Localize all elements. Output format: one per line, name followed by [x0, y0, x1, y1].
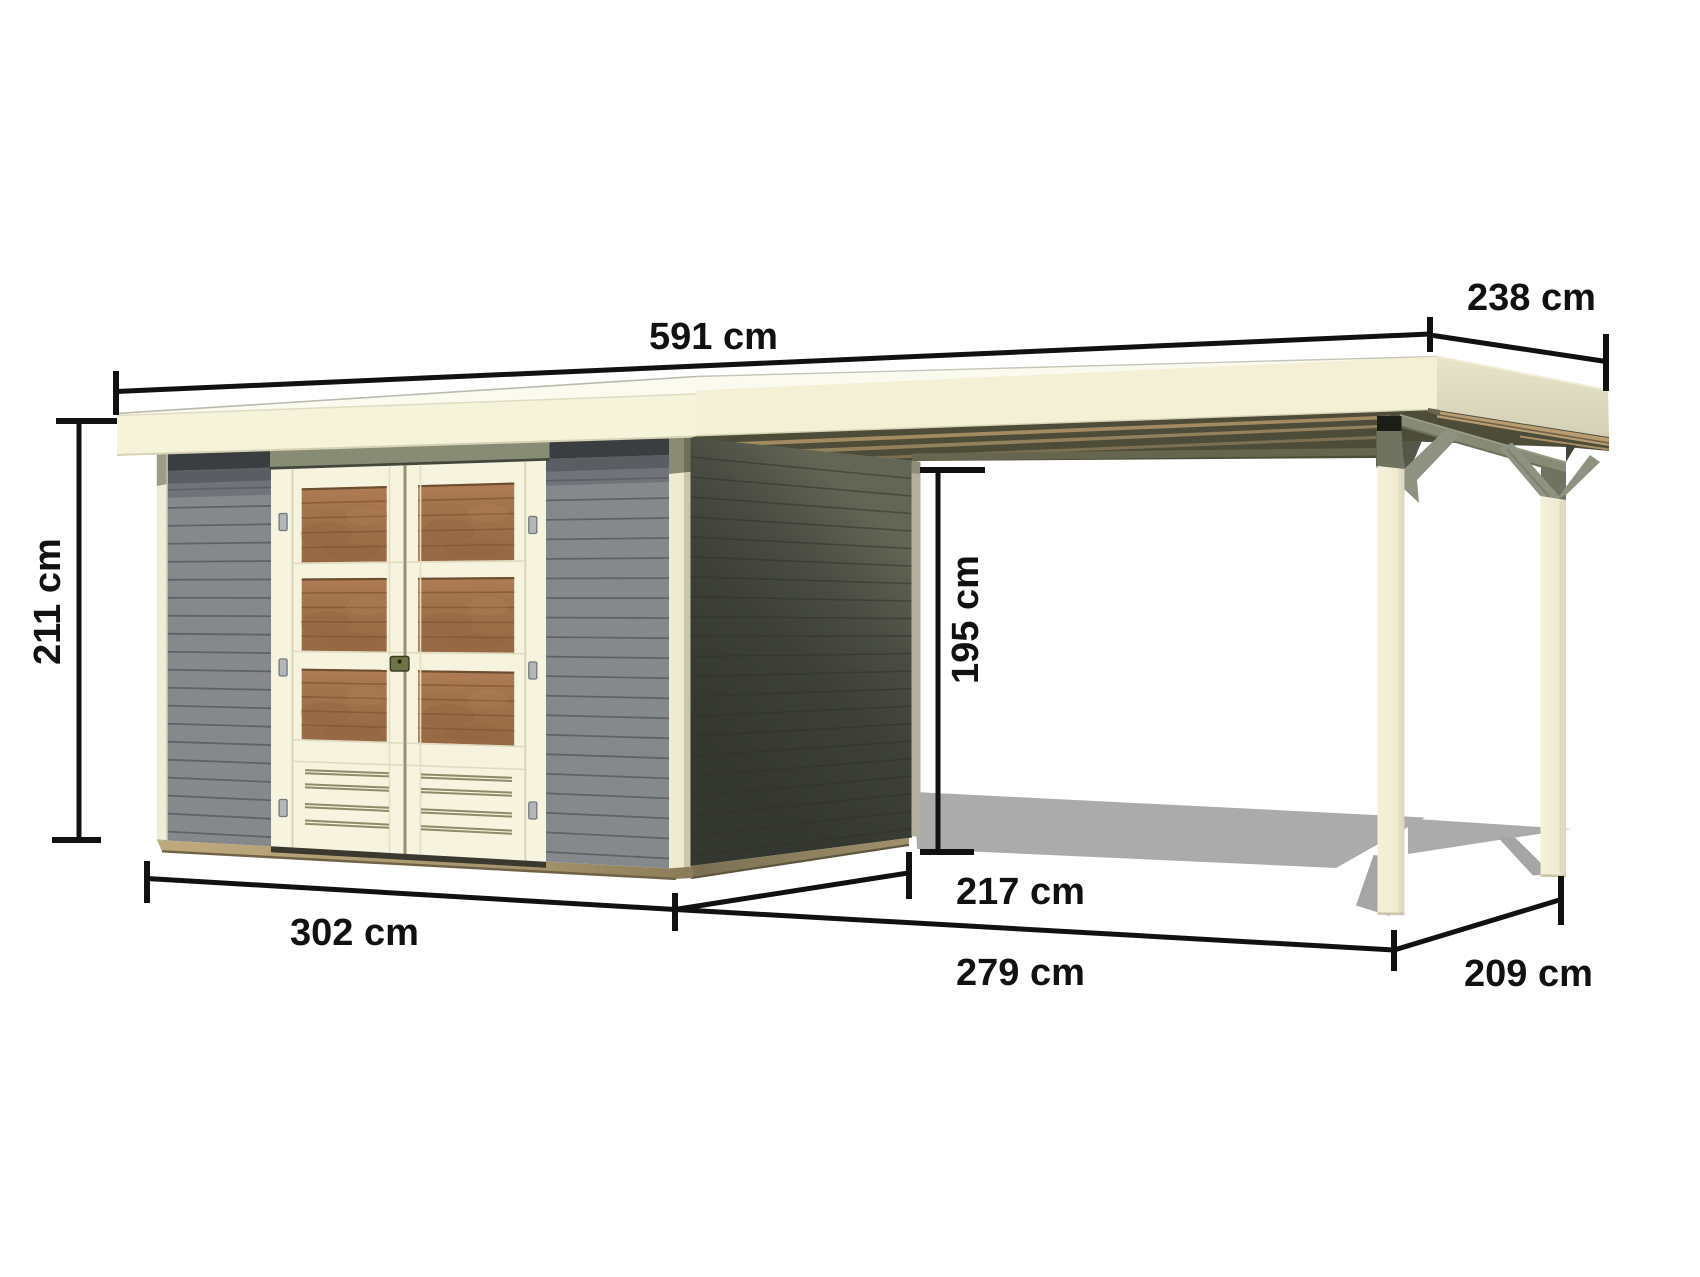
svg-text:211 cm: 211 cm — [27, 538, 69, 665]
svg-text:209 cm: 209 cm — [1464, 953, 1593, 995]
svg-text:302 cm: 302 cm — [290, 912, 419, 954]
svg-text:217 cm: 217 cm — [956, 871, 1085, 913]
svg-text:591 cm: 591 cm — [649, 316, 778, 358]
svg-text:195 cm: 195 cm — [945, 555, 987, 684]
svg-text:238 cm: 238 cm — [1467, 277, 1596, 319]
svg-text:279 cm: 279 cm — [956, 952, 1085, 994]
